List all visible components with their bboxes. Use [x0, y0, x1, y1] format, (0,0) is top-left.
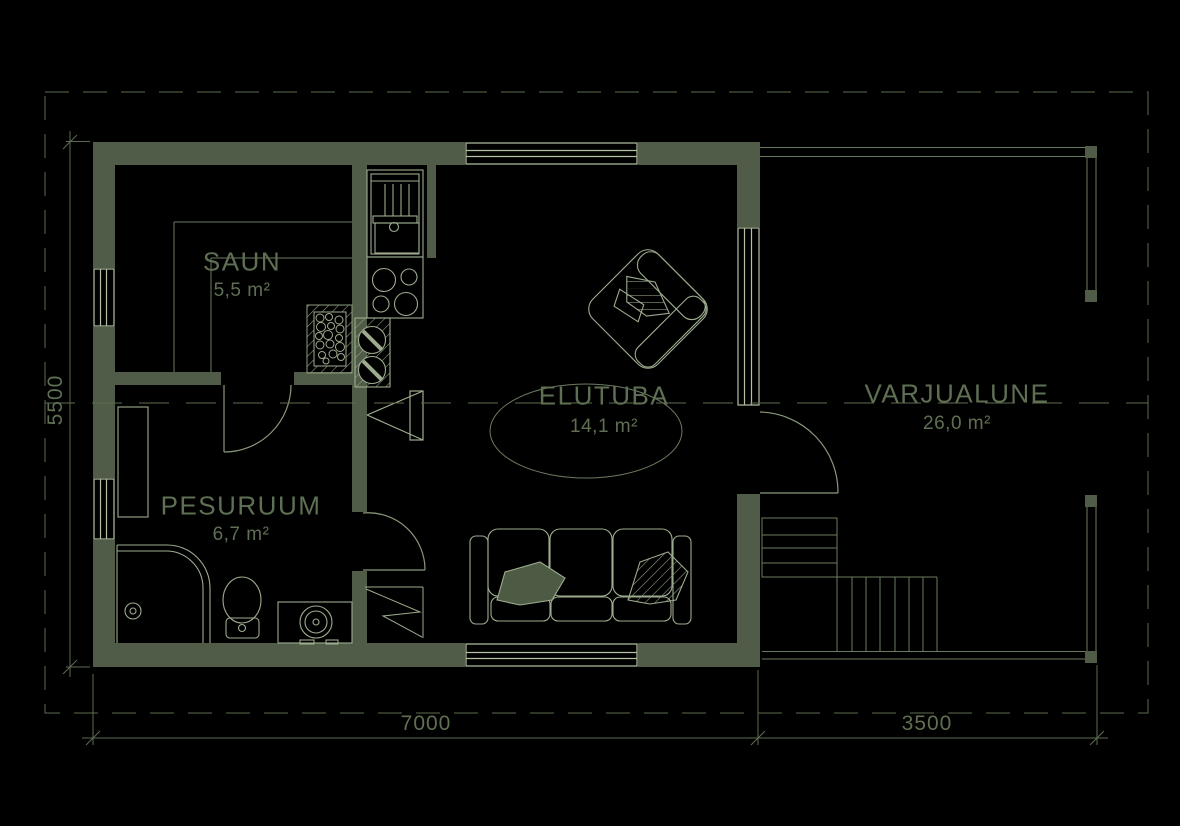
- room-area-varjualune: 26,0 m²: [923, 413, 991, 435]
- water-heater: [367, 170, 423, 257]
- opening-washroom-door: [352, 512, 367, 571]
- room-label-varjualune: VARJUALUNE: [864, 379, 1049, 410]
- sofa-pillow-right: [628, 552, 688, 604]
- window-livingroom: [737, 227, 760, 406]
- cabinet: [118, 407, 148, 517]
- shower: [117, 545, 210, 643]
- armchair: [583, 244, 713, 374]
- wall-kitchen-stub: [427, 165, 436, 258]
- dimension-horizontal-7000-3500: [82, 665, 1108, 745]
- door-terrace: [760, 412, 838, 493]
- door-openings: [221, 372, 760, 571]
- door-sauna: [224, 385, 291, 452]
- floor-plan-drawing: [0, 0, 1180, 826]
- room-label-pesuruum: PESURUUM: [161, 491, 322, 522]
- sofa: [470, 529, 691, 624]
- wall-interior-vertical: [352, 165, 367, 643]
- floor-plan-canvas: SAUN 5,5 m² PESURUUM 6,7 m² ELUTUBA 14,1…: [0, 0, 1180, 826]
- stove: [367, 257, 423, 318]
- washing-machine: [278, 602, 352, 644]
- room-area-elutuba: 14,1 m²: [570, 416, 638, 438]
- terrace-steps: [762, 518, 937, 651]
- dimension-text-7000: 7000: [401, 712, 452, 736]
- window-bottom: [465, 643, 638, 667]
- interior-walls: [115, 165, 436, 643]
- window-washroom: [93, 478, 115, 540]
- wall-left: [93, 142, 115, 667]
- room-area-pesuruum: 6,7 m²: [213, 524, 270, 546]
- fridge: [367, 391, 423, 440]
- sofa-armrest-left: [470, 536, 488, 624]
- door-washroom: [363, 513, 425, 570]
- dimension-text-3500: 3500: [902, 712, 953, 736]
- shaft-symbol: [365, 587, 423, 638]
- window-top: [465, 142, 638, 165]
- wall-top: [93, 142, 760, 165]
- opening-sauna-door: [221, 372, 294, 385]
- room-label-elutuba: ELUTUBA: [539, 381, 669, 412]
- dimension-text-5500: 5500: [44, 375, 68, 426]
- toilet: [223, 577, 261, 638]
- room-area-saun: 5,5 m²: [214, 280, 271, 302]
- window-sauna: [93, 268, 115, 327]
- armchair-blanket: [614, 265, 678, 329]
- wall-bottom: [93, 643, 760, 667]
- opening-terrace-door: [737, 406, 760, 494]
- sink: [355, 318, 390, 387]
- room-label-saun: SAUN: [203, 247, 281, 278]
- sauna-heater: [307, 305, 352, 373]
- shower-drain: [125, 603, 141, 619]
- sofa-pillow-left: [497, 562, 565, 605]
